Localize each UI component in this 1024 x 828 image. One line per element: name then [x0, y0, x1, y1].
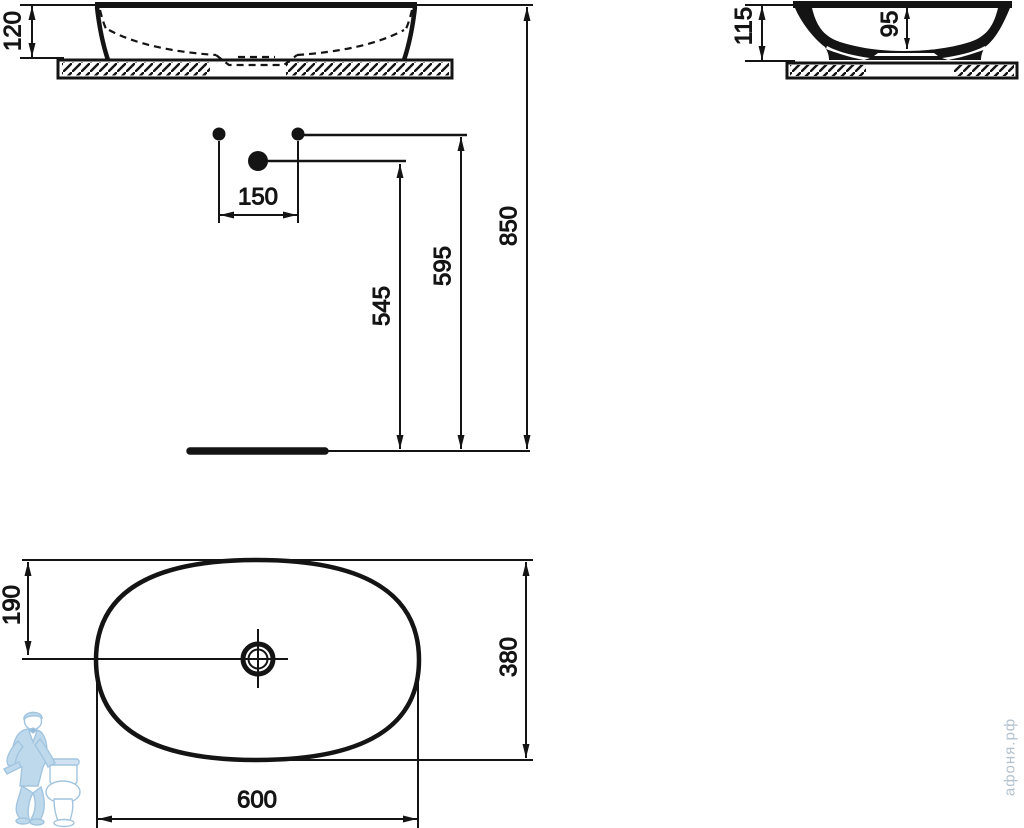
basin-front-outline	[95, 5, 417, 60]
dim-hole-spacing: 150	[220, 184, 297, 219]
dim-drain-height: 545	[369, 164, 404, 449]
basin-dimension-drawing: 120	[0, 0, 1024, 828]
dim-plan-center-offset: 190	[0, 562, 32, 655]
dim-label-150: 150	[238, 184, 278, 211]
watermark-text: афоня.рф	[1002, 718, 1019, 796]
side-view: 115 95	[731, 3, 1018, 78]
front-view: 120	[0, 5, 533, 78]
dim-side-overall-height: 115	[731, 5, 796, 61]
dim-front-rim-height: 120	[0, 6, 64, 58]
dim-label-850: 850	[496, 206, 523, 246]
dim-plan-depth: 380	[496, 562, 530, 758]
dim-plan-width: 600	[98, 787, 417, 823]
dim-label-120: 120	[0, 11, 27, 51]
countertop-side	[787, 63, 1017, 78]
dim-rim-height-from-floor: 850	[496, 7, 531, 449]
dim-label-190: 190	[0, 585, 26, 625]
dim-label-380: 380	[496, 637, 523, 677]
dim-supply-height: 595	[430, 137, 465, 449]
dim-label-115: 115	[731, 7, 758, 45]
dim-label-595: 595	[430, 246, 457, 286]
dim-label-95: 95	[877, 11, 904, 38]
countertop-front	[58, 60, 452, 78]
technical-drawing-canvas: 120	[0, 0, 1024, 828]
plumber-jacket	[13, 729, 47, 786]
dim-label-545: 545	[369, 286, 396, 326]
supply-point-left	[213, 128, 226, 141]
basin-front-hidden-lines	[100, 10, 412, 65]
plumber-logo-watermark	[2, 706, 94, 828]
dim-label-600: 600	[237, 787, 277, 814]
